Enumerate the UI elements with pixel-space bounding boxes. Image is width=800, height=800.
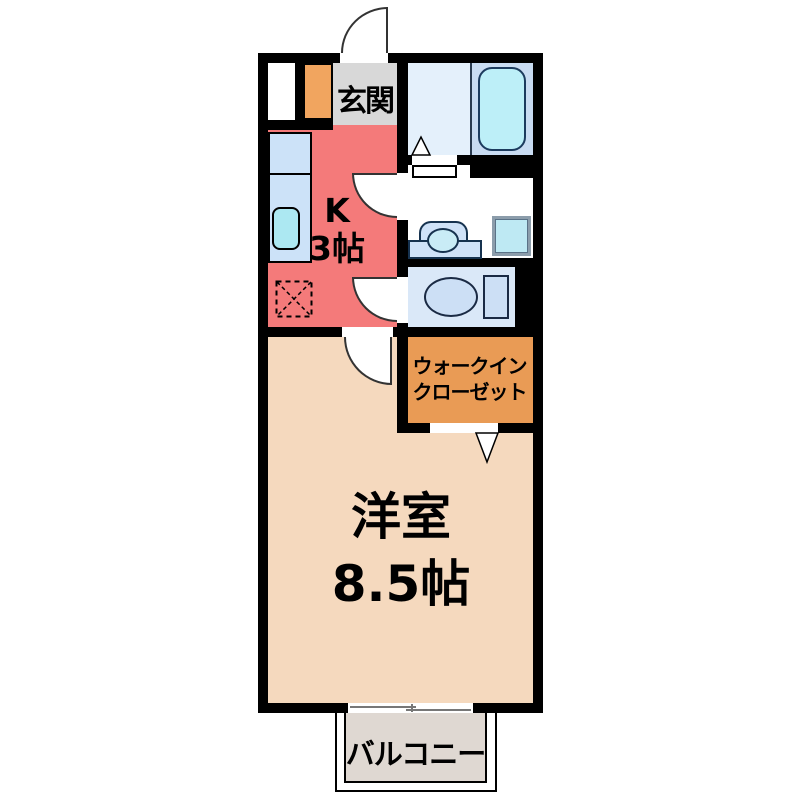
wall-mainroom-top (258, 327, 543, 337)
wall-storage-divider (295, 63, 303, 130)
washing-machine-icon (492, 216, 531, 256)
closet-label-line1: ウォークイン (404, 353, 535, 379)
floorplan-canvas: 玄関 K 3帖 ウォークイン クローゼット 洋室 8.5帖 バルコニー (0, 0, 800, 800)
bathroom-divider (470, 63, 472, 155)
western-room-name: 洋室 (266, 484, 536, 551)
western-room-label: 洋室 8.5帖 (266, 484, 536, 617)
storage-niche (268, 63, 295, 120)
closet-label-line2: クローゼット (404, 379, 535, 405)
washroom-door-opening (397, 173, 408, 220)
kitchen-label: K 3帖 (287, 192, 387, 269)
bathtub-icon (478, 67, 526, 151)
kitchen-label-k: K (287, 192, 387, 230)
toilet-door-opening (397, 277, 408, 323)
wall-washroom-bottom (397, 258, 533, 267)
western-room-size: 8.5帖 (266, 551, 536, 618)
wall-toilet-duct (515, 267, 533, 327)
counter-divider (270, 173, 310, 175)
toilet-bowl-icon (424, 277, 478, 317)
entrance-door-icon (341, 7, 388, 53)
toilet-tank-icon (483, 275, 509, 319)
refrigerator-space-icon (275, 280, 313, 318)
entrance-label: 玄関 (329, 76, 401, 120)
washbasin-bowl-icon (427, 228, 459, 253)
kitchen-label-size: 3帖 (287, 230, 387, 268)
bath-doorstep (412, 165, 457, 178)
closet-folding-door-icon (470, 428, 510, 470)
closet-label: ウォークイン クローゼット (404, 353, 535, 406)
entrance-door-opening (340, 53, 388, 63)
wall-bath-duct (470, 155, 533, 178)
bath-folding-door-icon (405, 130, 445, 160)
sliding-window-icon (348, 703, 473, 713)
balcony-label: バルコニー (344, 731, 487, 773)
mainroom-door-opening (342, 327, 393, 337)
